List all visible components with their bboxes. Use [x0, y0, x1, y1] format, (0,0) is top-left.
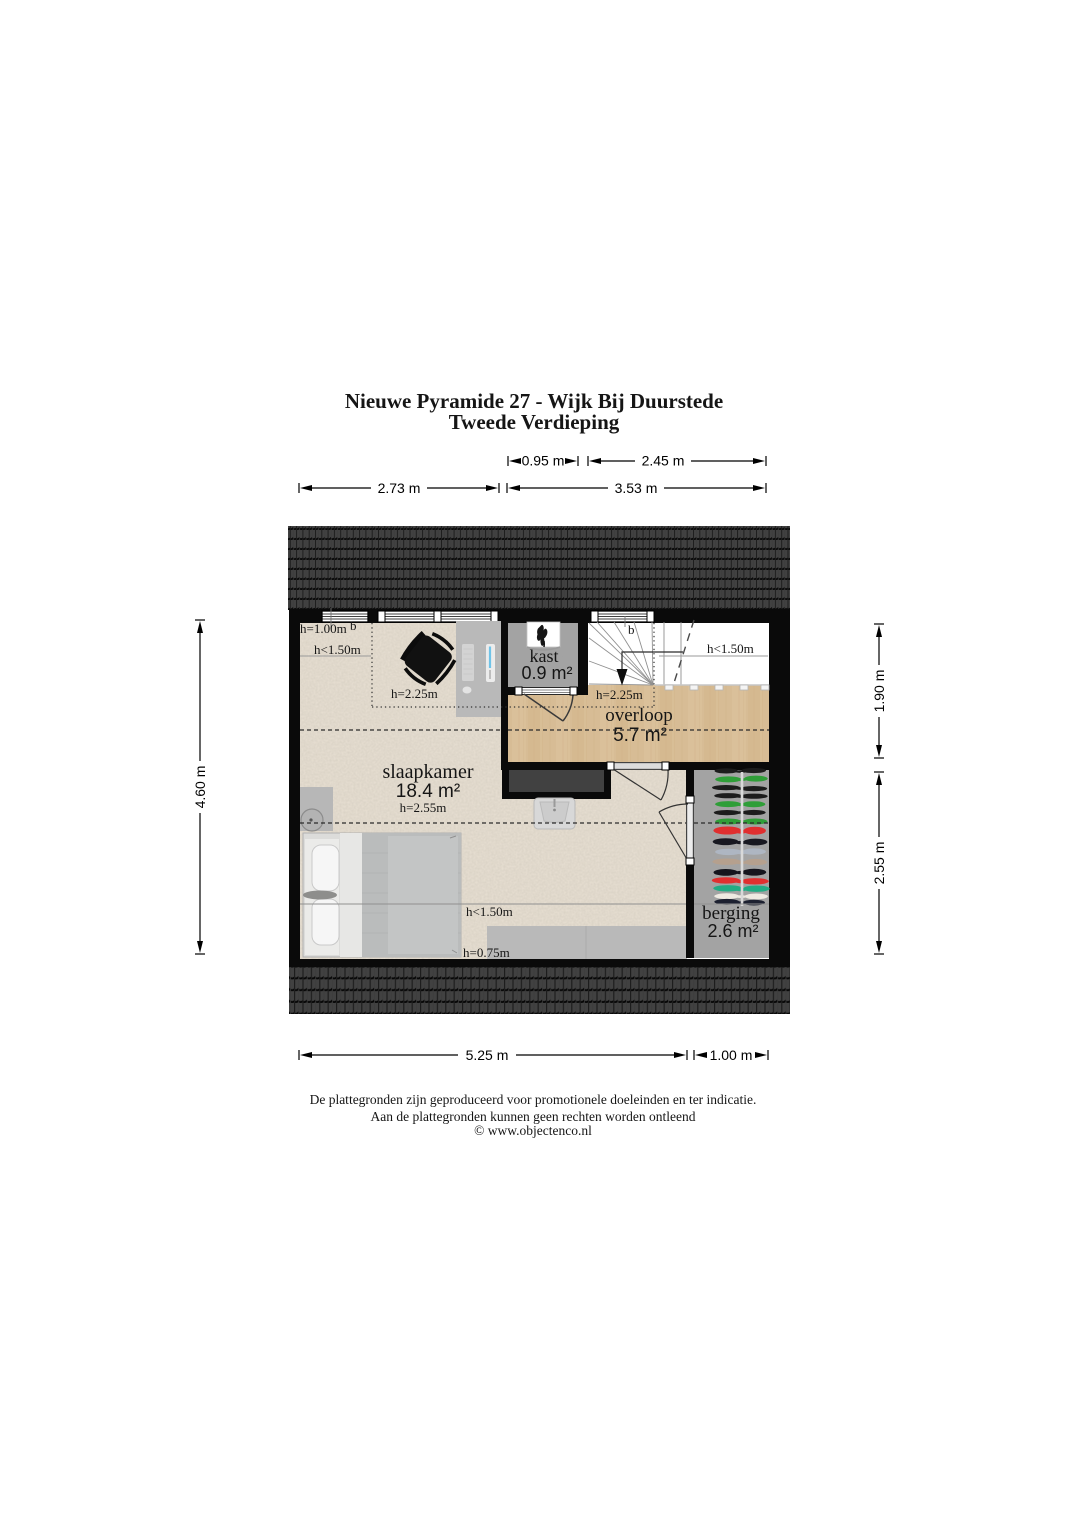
svg-text:2.73 m: 2.73 m — [378, 480, 421, 496]
svg-text:b: b — [628, 622, 635, 637]
svg-text:h=2.25m: h=2.25m — [391, 686, 438, 701]
svg-text:0.95 m: 0.95 m — [522, 453, 565, 469]
svg-text:slaapkamer: slaapkamer — [382, 761, 473, 783]
svg-text:h<1.50m: h<1.50m — [466, 904, 513, 919]
svg-text:2.6 m²: 2.6 m² — [707, 921, 758, 941]
svg-text:Tweede Verdieping: Tweede Verdieping — [449, 410, 620, 434]
svg-text:h=2.55m: h=2.55m — [400, 800, 447, 815]
svg-text:© www.objectenco.nl: © www.objectenco.nl — [474, 1123, 592, 1138]
svg-text:2.55 m: 2.55 m — [871, 842, 887, 885]
svg-text:5.7 m²: 5.7 m² — [613, 725, 667, 746]
svg-text:overloop: overloop — [605, 705, 673, 726]
svg-text:Aan de plattegronden kunnen ge: Aan de plattegronden kunnen geen rechten… — [370, 1109, 695, 1124]
svg-text:h=1.00m: h=1.00m — [300, 621, 347, 636]
svg-text:1.00 m: 1.00 m — [710, 1047, 753, 1063]
svg-text:h=2.25m: h=2.25m — [596, 687, 643, 702]
svg-text:4.60 m: 4.60 m — [192, 766, 208, 809]
svg-text:18.4 m²: 18.4 m² — [396, 781, 460, 802]
svg-text:5.25 m: 5.25 m — [466, 1047, 509, 1063]
svg-text:h<1.50m: h<1.50m — [314, 642, 361, 657]
svg-text:0.9 m²: 0.9 m² — [521, 663, 572, 683]
svg-text:3.53 m: 3.53 m — [615, 480, 658, 496]
svg-text:1.90 m: 1.90 m — [871, 670, 887, 713]
svg-text:De plattegronden zijn geproduc: De plattegronden zijn geproduceerd voor … — [310, 1092, 757, 1107]
svg-text:h<1.50m: h<1.50m — [707, 641, 754, 656]
svg-text:h=0.75m: h=0.75m — [463, 945, 510, 960]
svg-text:b: b — [350, 618, 357, 633]
svg-text:2.45 m: 2.45 m — [642, 453, 685, 469]
